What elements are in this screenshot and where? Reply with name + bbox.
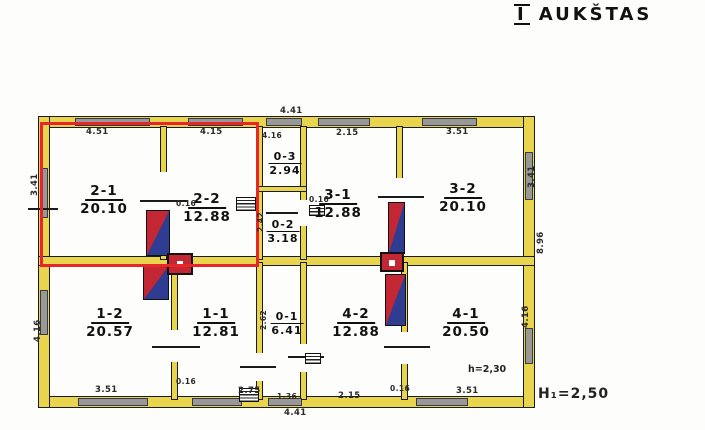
dimension-tick xyxy=(378,196,424,198)
room-label-0-3: 0-3 2.94 xyxy=(269,145,302,177)
room-id: 1-2 xyxy=(91,307,128,324)
room-label-3-2: 3-2 20.10 xyxy=(439,178,487,215)
room-area: 20.50 xyxy=(442,324,490,340)
stove-symbol-lower-left xyxy=(143,266,169,300)
dim-label: 2.42 xyxy=(256,212,265,232)
dimension-tick xyxy=(240,366,276,368)
door-opening xyxy=(400,332,409,364)
dim-label: 3.41 xyxy=(30,173,40,196)
dim-label: 0.16 xyxy=(309,195,329,204)
dim-label: 3.51 xyxy=(95,385,118,395)
room-area: 20.57 xyxy=(86,324,134,340)
window-segment xyxy=(266,118,302,126)
room-area: 20.10 xyxy=(439,199,487,215)
dim-label: 0.16 xyxy=(176,199,196,208)
dimension-tick xyxy=(384,346,430,348)
stove-symbol-upper-right xyxy=(388,202,405,254)
window-segment xyxy=(78,398,148,406)
room-height-annotation: h=2,30 xyxy=(468,364,506,375)
dim-label: 2.75 xyxy=(238,386,261,396)
room-label-4-2: 4-2 12.88 xyxy=(332,303,380,340)
room-id: 0-1 xyxy=(271,311,304,324)
dim-label: 4.16 xyxy=(33,319,43,342)
room-label-4-1: 4-1 20.50 xyxy=(442,303,490,340)
dim-label: 2.62 xyxy=(259,310,268,330)
dim-label: 0.16 xyxy=(176,377,196,386)
room-area: 2.94 xyxy=(269,164,302,177)
dim-label: 4.51 xyxy=(86,127,109,137)
dim-label: 1.36 xyxy=(277,392,297,401)
dim-label: 3.41 xyxy=(527,165,537,188)
room-id: 4-1 xyxy=(447,307,484,324)
door-opening xyxy=(299,200,308,226)
room-id: 0-2 xyxy=(267,219,300,232)
window-segment xyxy=(422,118,477,126)
dim-label: 4.41 xyxy=(280,106,303,116)
dim-label: 4.16 xyxy=(521,305,531,328)
wall-interior xyxy=(256,186,307,192)
stove-red-triangle xyxy=(386,275,405,325)
room-id: 2-1 xyxy=(85,184,122,201)
dim-label: 2.15 xyxy=(338,391,361,401)
room-label-1-1: 1-1 12.81 xyxy=(192,303,240,340)
room-area: 20.10 xyxy=(80,201,128,217)
dim-label: 0.16 xyxy=(390,384,410,393)
dimension-tick xyxy=(152,346,200,348)
room-area: 12.88 xyxy=(314,205,362,221)
dim-label: 4.16 xyxy=(262,131,282,140)
room-id: 0-3 xyxy=(269,151,302,164)
room-area: 12.81 xyxy=(192,324,240,340)
window-segment xyxy=(416,398,468,406)
room-id: 3-2 xyxy=(444,182,481,199)
room-label-0-2: 0-2 3.18 xyxy=(267,213,300,245)
dim-label: 3.51 xyxy=(456,386,479,396)
floor-title-text: AUKŠTAS xyxy=(539,4,653,25)
window-segment xyxy=(525,328,533,364)
dim-label: 3.51 xyxy=(446,127,469,137)
room-label-1-2: 1-2 20.57 xyxy=(86,303,134,340)
window-segment xyxy=(192,398,242,406)
window-segment xyxy=(318,118,370,126)
drawing-title: IAUKŠTAS xyxy=(514,4,652,25)
room-id: 1-1 xyxy=(197,307,234,324)
dim-label: 4.41 xyxy=(284,408,307,418)
room-area: 3.18 xyxy=(267,232,300,245)
room-id: 4-2 xyxy=(337,307,374,324)
floor-height-annotation: H₁=2,50 xyxy=(538,386,609,402)
room-label-0-1: 0-1 6.41 xyxy=(271,305,304,337)
dim-label: 2.15 xyxy=(336,128,359,138)
stove-red-triangle xyxy=(144,267,168,299)
flue-box-right xyxy=(380,252,404,272)
flue-notch xyxy=(389,260,395,266)
stove-red-triangle xyxy=(389,203,404,253)
stove-symbol-lower-right xyxy=(385,274,406,326)
room-area: 12.88 xyxy=(332,324,380,340)
room-area: 12.88 xyxy=(183,209,231,225)
room-label-2-1: 2-1 20.10 xyxy=(80,180,128,217)
room-area: 6.41 xyxy=(271,324,304,337)
floor-numeral: I xyxy=(514,4,530,25)
vent-grille-icon xyxy=(305,353,321,364)
dim-label: 4.15 xyxy=(200,127,223,137)
floor-plan-scan: IAUKŠTAS xyxy=(0,0,705,430)
dim-label: 8.96 xyxy=(536,231,546,254)
